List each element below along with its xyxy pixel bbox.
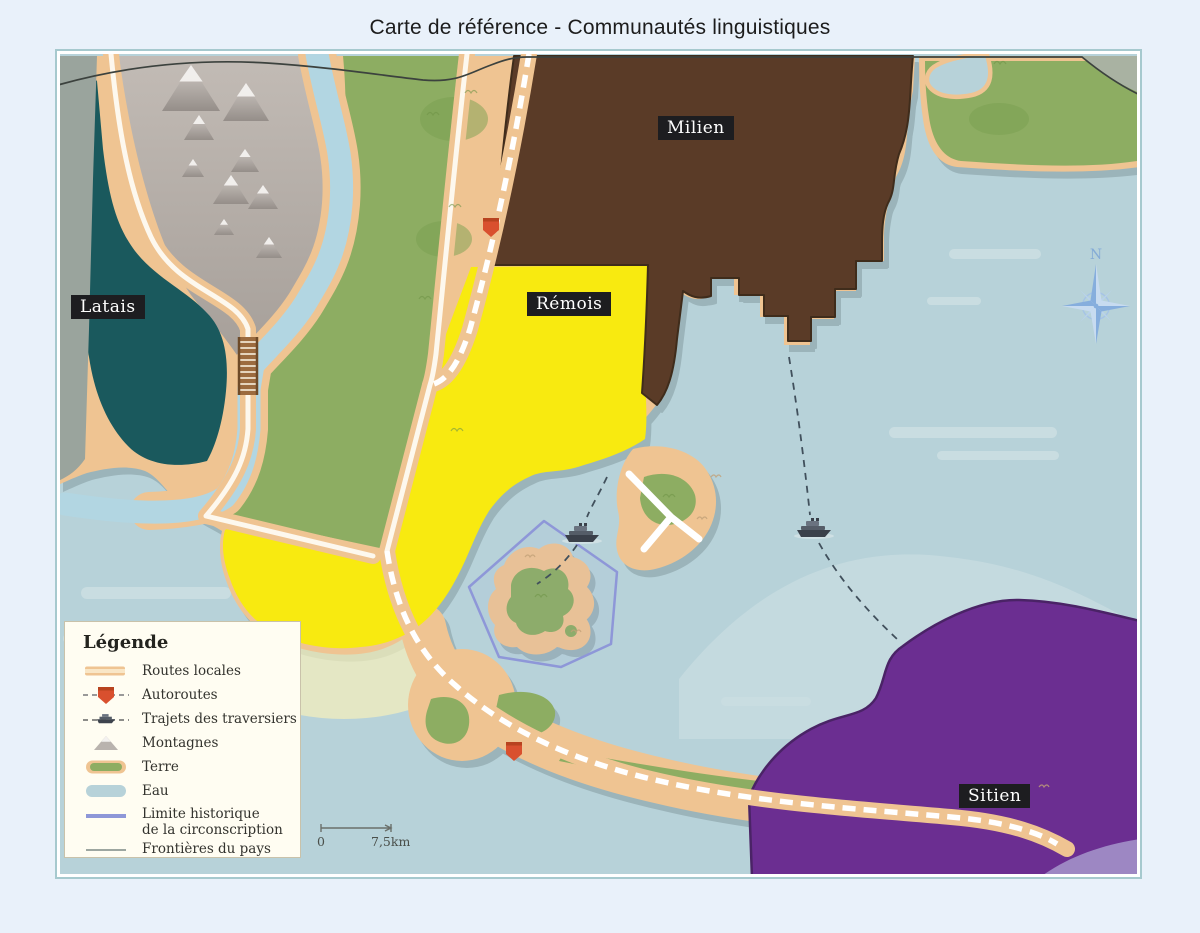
mountain-icon	[83, 734, 135, 754]
land-icon	[83, 758, 135, 778]
compass-north-label: N	[1090, 247, 1102, 263]
legend-label: Limite historique de la circonscription	[142, 807, 283, 838]
scale-end: 7,5km	[371, 834, 410, 849]
legend-label-line1: Limite historique	[142, 806, 260, 822]
legend-label: Montagnes	[142, 736, 218, 752]
legend-title: Légende	[83, 632, 300, 653]
local-road-icon	[83, 663, 135, 681]
legend-label: Frontières du pays	[142, 842, 271, 858]
legend-label: Eau	[142, 784, 169, 800]
label-sitien: Sitien	[959, 784, 1030, 808]
label-remois: Rémois	[527, 292, 611, 316]
autoroute-icon	[83, 685, 135, 708]
historic-boundary-icon	[83, 807, 135, 821]
page-title: Carte de référence - Communautés linguis…	[0, 16, 1200, 40]
legend-label: Autoroutes	[142, 688, 218, 704]
ferry-route-icon	[83, 711, 135, 729]
legend-label: Trajets des traversiers	[142, 712, 297, 728]
legend-label-line2: de la circonscription	[142, 822, 283, 838]
country-border-icon	[83, 846, 135, 855]
legend-row: Frontières du pays	[83, 838, 300, 862]
label-latais: Latais	[71, 295, 145, 319]
legend: Légende Routes locales Autoroutes Trajet…	[64, 621, 301, 858]
legend-row: Autoroutes	[83, 684, 300, 708]
legend-row: Routes locales	[83, 660, 300, 684]
scale-start: 0	[317, 834, 325, 849]
label-milien: Milien	[658, 116, 734, 140]
legend-label: Terre	[142, 760, 179, 776]
legend-label: Routes locales	[142, 664, 241, 680]
legend-row: Limite historique de la circonscription	[83, 804, 300, 838]
legend-row: Eau	[83, 780, 300, 804]
map-panel: N 0 7,5km Latais Milien Rémois Sitien Lé…	[55, 49, 1142, 879]
bridge	[238, 337, 258, 395]
legend-row: Montagnes	[83, 732, 300, 756]
water-icon	[83, 782, 135, 802]
legend-row: Terre	[83, 756, 300, 780]
legend-row: Trajets des traversiers	[83, 708, 300, 732]
